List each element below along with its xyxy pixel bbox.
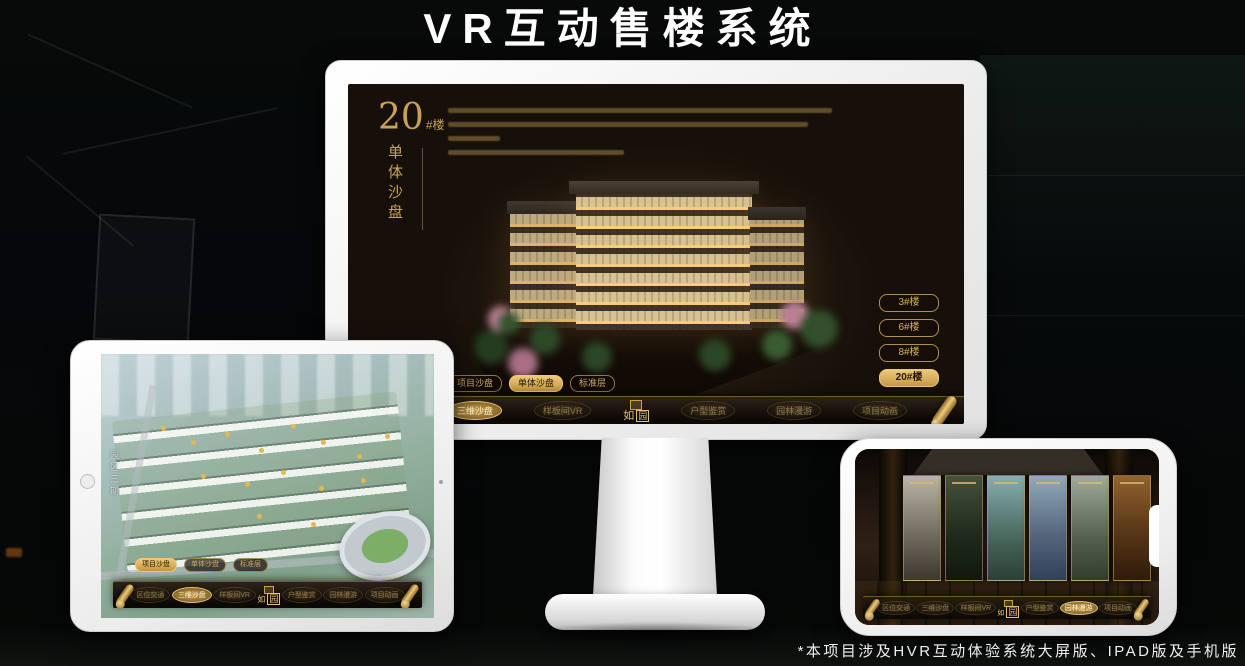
phone-navbar: 区位交通 三维沙盘 样板间VR 如园 户型鉴赏 园林漫游 项目动画 bbox=[863, 596, 1151, 619]
phone-device: 区位交通 三维沙盘 样板间VR 如园 户型鉴赏 园林漫游 项目动画 bbox=[840, 438, 1177, 636]
nav-showroom-vr[interactable]: 样板间VR bbox=[534, 401, 592, 420]
camera-dot-icon bbox=[439, 480, 443, 484]
nav-garden-roam[interactable]: 园林漫游 bbox=[767, 401, 821, 420]
monitor-shadow bbox=[515, 622, 795, 646]
background-aerial-right bbox=[980, 55, 1245, 485]
block-heading: 20#楼 单体沙盘 bbox=[378, 100, 445, 224]
tab-standard-floor[interactable]: 标准层 bbox=[233, 558, 268, 572]
gallery-strip-garden[interactable] bbox=[987, 475, 1025, 581]
nav-unit-appreciation[interactable]: 户型鉴赏 bbox=[681, 401, 735, 420]
building-main-block[interactable] bbox=[576, 192, 752, 330]
seal-icon bbox=[630, 400, 642, 410]
page-title: VR互动售楼系统 bbox=[0, 0, 1245, 58]
home-button[interactable] bbox=[80, 474, 95, 489]
floor-button-8[interactable]: 8#楼 bbox=[879, 344, 939, 362]
nav-garden-roam[interactable]: 园林漫游 bbox=[323, 587, 363, 603]
floor-button-20[interactable]: 20#楼 bbox=[879, 369, 939, 387]
ipad-mode-tabs: 项目沙盘 单体沙盘 标准层 bbox=[135, 558, 268, 572]
phone-screen: 区位交通 三维沙盘 样板间VR 如园 户型鉴赏 园林漫游 项目动画 bbox=[855, 449, 1159, 625]
gallery-strip-interior[interactable] bbox=[945, 475, 983, 581]
monitor-stand-neck bbox=[593, 438, 717, 596]
nav-3d-sandbox[interactable]: 三维沙盘 bbox=[448, 401, 502, 420]
gallery-strip-facade[interactable] bbox=[1029, 475, 1067, 581]
gallery-strip-cabinet[interactable] bbox=[1113, 475, 1151, 581]
footnote-caption: *本项目涉及HVR互动体验系统大屏版、IPAD版及手机版 bbox=[798, 640, 1239, 661]
background-plaque bbox=[93, 214, 195, 345]
building-number-badges bbox=[161, 426, 166, 431]
scroll-ornament-icon[interactable] bbox=[930, 393, 959, 424]
landscape-trees bbox=[498, 312, 520, 334]
tab-project-sandbox[interactable]: 项目沙盘 bbox=[448, 375, 502, 392]
block-subtitle: 单体沙盘 bbox=[384, 144, 405, 224]
nav-showroom-vr[interactable]: 样板间VR bbox=[955, 601, 996, 615]
tab-single-sandbox[interactable]: 单体沙盘 bbox=[509, 375, 563, 392]
building-left-wing bbox=[510, 212, 578, 328]
block-number: 20 bbox=[378, 97, 424, 138]
tab-standard-floor[interactable]: 标准层 bbox=[570, 375, 615, 392]
tab-single-sandbox[interactable]: 单体沙盘 bbox=[184, 558, 226, 572]
phone-notch bbox=[1149, 505, 1159, 567]
ipad-device: 园区三期 项目沙盘 单体沙盘 标准层 区位交通 三维沙盘 样板间VR 如园 户型… bbox=[70, 340, 454, 632]
description-text-lines bbox=[448, 108, 848, 164]
nav-unit-appreciation[interactable]: 户型鉴赏 bbox=[1021, 601, 1059, 615]
nav-location-traffic[interactable]: 区位交通 bbox=[877, 601, 915, 615]
nav-garden-roam[interactable]: 园林漫游 bbox=[1060, 601, 1098, 615]
background-logo-speck bbox=[6, 548, 22, 557]
gallery-strip-path[interactable] bbox=[1071, 475, 1109, 581]
tab-project-sandbox[interactable]: 项目沙盘 bbox=[135, 558, 177, 572]
brand-logo: 如园 bbox=[623, 400, 649, 422]
nav-location-traffic[interactable]: 区位交通 bbox=[130, 587, 170, 603]
floor-button-6[interactable]: 6#楼 bbox=[879, 319, 939, 337]
brand-logo: 如园 bbox=[997, 600, 1019, 617]
poster-canvas: VR互动售楼系统 20#楼 单体沙盘 3#楼 bbox=[0, 0, 1245, 666]
nav-project-animation[interactable]: 项目动画 bbox=[1099, 601, 1137, 615]
nav-showroom-vr[interactable]: 样板间VR bbox=[213, 587, 256, 603]
nav-unit-appreciation[interactable]: 户型鉴赏 bbox=[282, 587, 322, 603]
ipad-navbar: 区位交通 三维沙盘 样板间VR 如园 户型鉴赏 园林漫游 项目动画 bbox=[113, 581, 422, 608]
ceiling-beam bbox=[913, 449, 1103, 475]
brand-logo: 如园 bbox=[257, 586, 280, 604]
ipad-screen: 园区三期 项目沙盘 单体沙盘 标准层 区位交通 三维沙盘 样板间VR 如园 户型… bbox=[101, 354, 434, 618]
gallery-strip-courtyard[interactable] bbox=[903, 475, 941, 581]
floor-button-3[interactable]: 3#楼 bbox=[879, 294, 939, 312]
district-side-label: 园区三期 bbox=[108, 450, 121, 498]
nav-project-animation[interactable]: 项目动画 bbox=[365, 587, 405, 603]
heading-divider bbox=[422, 148, 423, 230]
nav-3d-sandbox[interactable]: 三维沙盘 bbox=[916, 601, 954, 615]
block-number-suffix: #楼 bbox=[426, 118, 445, 132]
nav-project-animation[interactable]: 项目动画 bbox=[853, 401, 907, 420]
building-right-wing bbox=[750, 218, 804, 328]
floor-button-group: 3#楼 6#楼 8#楼 20#楼 bbox=[879, 294, 939, 394]
nav-3d-sandbox[interactable]: 三维沙盘 bbox=[172, 587, 212, 603]
monitor-mode-tabs: 项目沙盘 单体沙盘 标准层 bbox=[448, 375, 615, 392]
